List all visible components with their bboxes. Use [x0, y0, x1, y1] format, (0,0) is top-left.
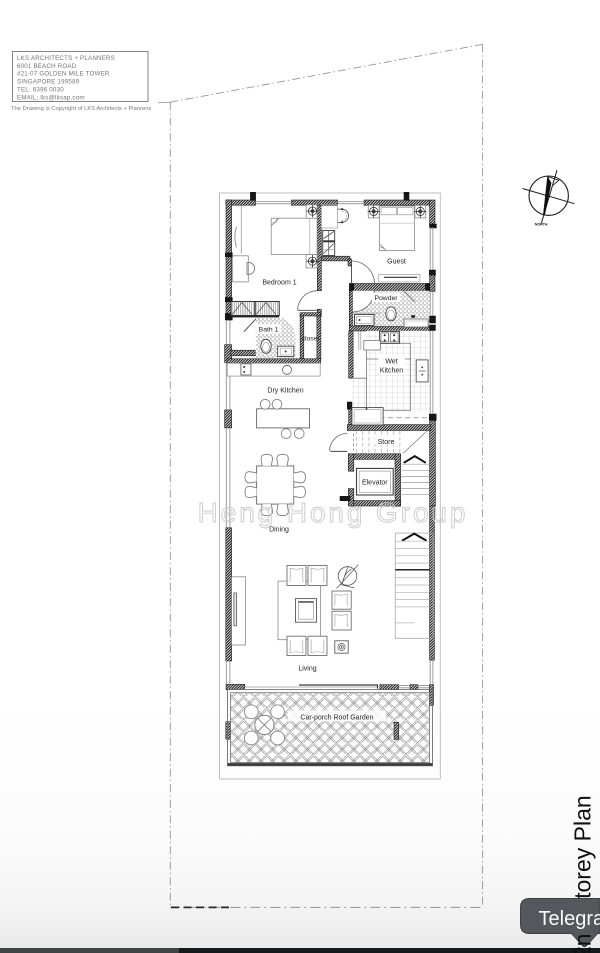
svg-text:Telegram: Telegram: [539, 908, 600, 930]
svg-text:Guest: Guest: [387, 259, 406, 266]
svg-text:Powder: Powder: [374, 295, 398, 302]
svg-text:The Drawing is Copyright of LK: The Drawing is Copyright of LKS Architec…: [11, 106, 151, 112]
svg-text:SINGAPORE 199589: SINGAPORE 199589: [17, 79, 80, 86]
svg-text:6001 BEACH ROAD: 6001 BEACH ROAD: [17, 63, 77, 70]
svg-text:Wet: Wet: [385, 359, 397, 366]
svg-text:Elevator: Elevator: [362, 480, 388, 487]
svg-text:LKS ARCHITECTS + PLANNERS: LKS ARCHITECTS + PLANNERS: [17, 55, 115, 62]
svg-text:Bath 1: Bath 1: [259, 327, 279, 334]
svg-text:Heng Hong Group: Heng Hong Group: [198, 497, 469, 528]
svg-text:Store: Store: [378, 439, 395, 446]
svg-text:Dry Kitchen: Dry Kitchen: [267, 388, 303, 395]
svg-text:EMAIL: lks@lksap.com: EMAIL: lks@lksap.com: [17, 94, 85, 101]
svg-text:Bedroom 1: Bedroom 1: [262, 280, 296, 287]
svg-text:NORTH: NORTH: [535, 222, 548, 227]
svg-text:Living: Living: [298, 666, 316, 673]
svg-text:TEL: 6396 0030: TEL: 6396 0030: [17, 87, 64, 94]
svg-text:Kitchen: Kitchen: [380, 368, 403, 375]
svg-text:closet: closet: [302, 336, 320, 343]
svg-text:#21-07 GOLDEN MILE TOWER: #21-07 GOLDEN MILE TOWER: [17, 71, 110, 78]
